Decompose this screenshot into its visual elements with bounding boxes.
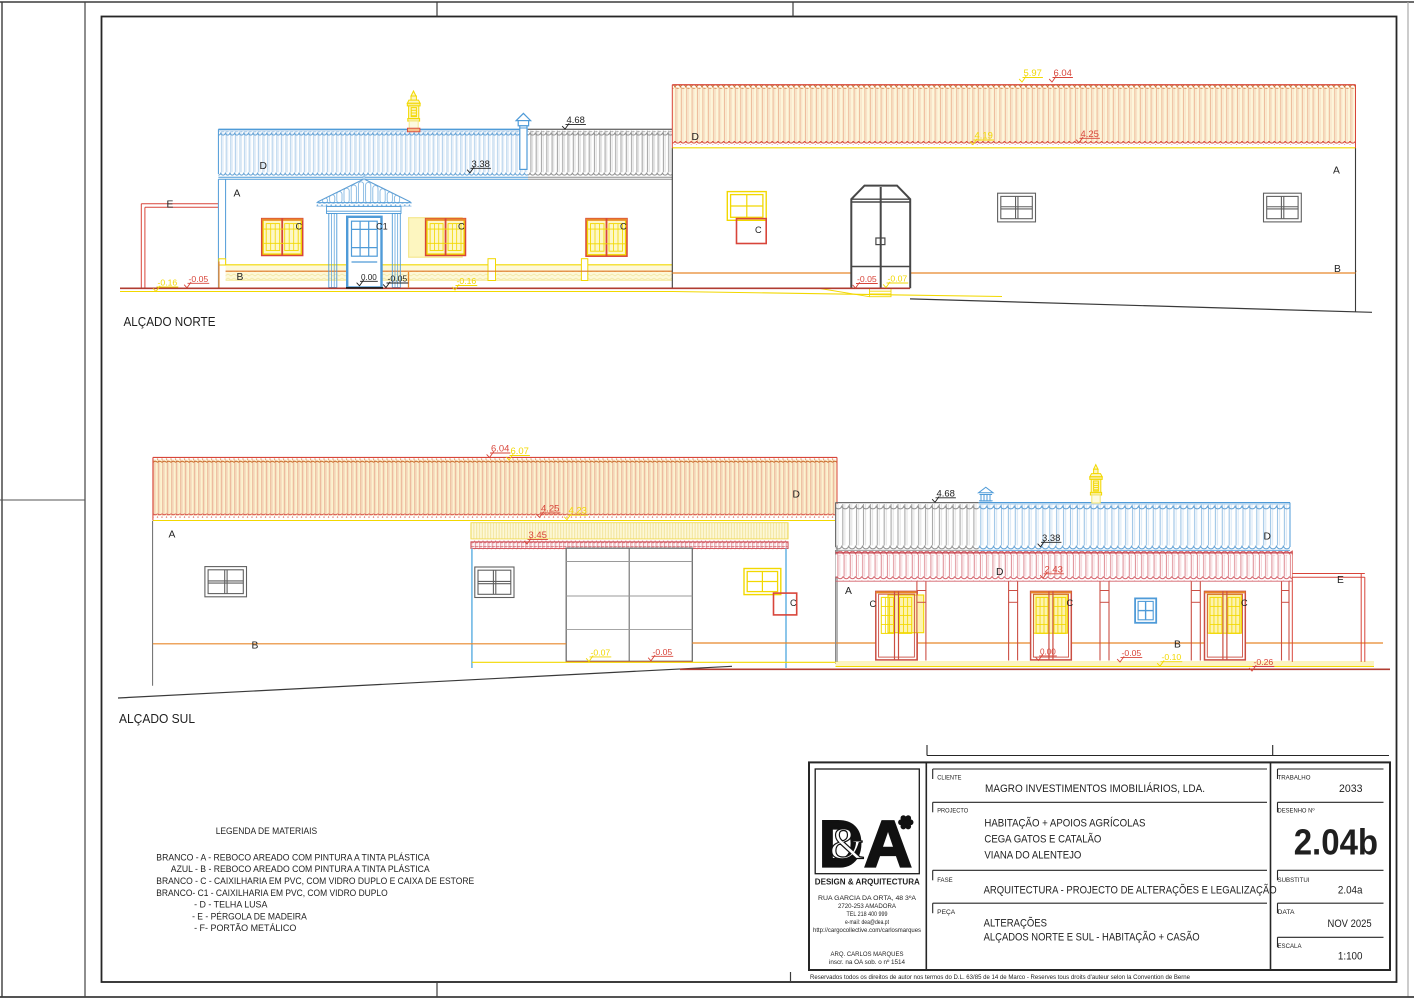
svg-text:D: D [692,132,699,143]
svg-text:SUBSTITUI: SUBSTITUI [1278,877,1310,884]
svg-text:PROJECTO: PROJECTO [937,807,968,814]
svg-text:-0.16: -0.16 [158,278,178,288]
svg-text:-0.16: -0.16 [457,276,477,286]
svg-text:ESCALA: ESCALA [1278,943,1303,950]
svg-text:HABITAÇÃO + APOIOS AGRÍCOLAS: HABITAÇÃO + APOIOS AGRÍCOLAS [984,816,1145,829]
svg-text:BRANCO- C1 - CAIXILHARIA EM PV: BRANCO- C1 - CAIXILHARIA EM PVC, COM VID… [156,887,387,898]
svg-text:2720-253 AMADORA: 2720-253 AMADORA [838,903,897,910]
svg-text:C: C [458,222,465,232]
svg-text:C1: C1 [376,221,388,231]
svg-text:D: D [996,567,1003,578]
svg-text:- F- PORTÃO METÁLICO: - F- PORTÃO METÁLICO [194,922,296,933]
svg-text:ALÇADO SUL: ALÇADO SUL [119,711,195,726]
svg-text:B: B [237,272,244,283]
svg-text:- D - TELHA LUSA: - D - TELHA LUSA [194,899,268,910]
svg-text:B: B [252,641,259,652]
svg-text:ARQUITECTURA - PROJECTO DE ALT: ARQUITECTURA - PROJECTO DE ALTERAÇÕES E … [984,884,1277,897]
svg-text:CEGA GATOS E CATALÃO: CEGA GATOS E CATALÃO [984,833,1101,846]
svg-text:DESENHO Nº: DESENHO Nº [1278,807,1316,814]
svg-text:1:100: 1:100 [1338,951,1363,963]
svg-text:ALÇADOS NORTE E SUL - HABITAÇÃ: ALÇADOS NORTE E SUL - HABITAÇÃO + CASÃO [984,930,1200,943]
svg-text:A: A [169,530,176,541]
svg-text:E: E [167,200,174,211]
svg-text:ARQ. CARLOS MARQUES: ARQ. CARLOS MARQUES [831,951,904,958]
svg-text:TRABALHO: TRABALHO [1278,774,1311,781]
svg-text:A: A [845,586,852,597]
svg-text:-0.07: -0.07 [888,274,908,284]
svg-text:CLIENTE: CLIENTE [937,774,962,781]
svg-text:2.04a: 2.04a [1338,884,1363,896]
svg-text:- E - PÉRGOLA DE MADEIRA: - E - PÉRGOLA DE MADEIRA [192,910,307,921]
svg-text:MAGRO INVESTIMENTOS IMOBILIÁRI: MAGRO INVESTIMENTOS IMOBILIÁRIOS, LDA. [985,782,1205,795]
svg-text:e-mail: dea@dea.pt: e-mail: dea@dea.pt [845,919,889,926]
svg-text:-0.26: -0.26 [1254,657,1274,667]
svg-text:DESIGN & ARQUITECTURA: DESIGN & ARQUITECTURA [815,876,920,886]
svg-text:C: C [1067,598,1074,608]
svg-text:&: & [830,819,864,868]
svg-text:2033: 2033 [1339,783,1363,795]
svg-text:-0.07: -0.07 [591,647,611,657]
svg-text:A: A [1333,166,1340,177]
svg-text:2.04b: 2.04b [1294,821,1378,862]
svg-text:DATA: DATA [1278,909,1296,916]
svg-text:ALÇADO NORTE: ALÇADO NORTE [124,314,216,329]
svg-text:FASE: FASE [937,877,953,884]
svg-text:C: C [790,598,797,608]
svg-text:AZUL - B - REBOCO AREADO CO: AZUL - B - REBOCO AREADO COM PINTURA A T… [171,863,431,874]
svg-text:-0.05: -0.05 [1122,648,1142,658]
svg-text:-0.05: -0.05 [653,647,673,657]
svg-text:http://cargocollective.com/car: http://cargocollective.com/carlosmarques [813,927,921,934]
svg-text:C: C [296,222,303,232]
svg-text:D: D [1264,532,1271,543]
svg-text:BRANCO - A - REBOCO AREADO C: BRANCO - A - REBOCO AREADO COM PINTURA A… [156,851,430,862]
svg-text:Reservados todos os direitos d: Reservados todos os direitos de autor no… [810,974,1191,981]
svg-text:ALTERAÇÕES: ALTERAÇÕES [984,916,1047,929]
svg-text:BRANCO - C - CAIXILHARIA EM P: BRANCO - C - CAIXILHARIA EM PVC, COM VID… [156,875,474,886]
svg-text:-0.05: -0.05 [189,274,209,284]
svg-text:-0.05: -0.05 [857,274,877,284]
svg-text:-0.05: -0.05 [388,274,408,284]
svg-text:PEÇA: PEÇA [937,909,956,916]
svg-text:VIANA DO ALENTEJO: VIANA DO ALENTEJO [984,850,1081,862]
svg-text:E: E [1337,575,1344,586]
svg-text:TEL 218 400 999: TEL 218 400 999 [847,911,888,918]
svg-text:B: B [1174,639,1181,650]
svg-text:C: C [620,222,627,232]
svg-text:-0.10: -0.10 [1162,652,1182,662]
svg-text:LEGENDA DE MATERIAIS: LEGENDA DE MATERIAIS [216,825,318,836]
svg-text:D: D [793,490,800,501]
svg-text:C: C [1241,598,1248,608]
svg-text:RUA GARCIA DA ORTA, 48 3ºA: RUA GARCIA DA ORTA, 48 3ºA [818,895,917,902]
svg-text:A: A [234,189,241,200]
svg-text:C: C [870,599,877,609]
svg-text:inscr. na OA sob. o nº 1514: inscr. na OA sob. o nº 1514 [829,959,906,966]
svg-text:NOV 2025: NOV 2025 [1328,918,1372,930]
svg-text:C: C [755,225,762,235]
svg-text:D: D [260,161,267,172]
